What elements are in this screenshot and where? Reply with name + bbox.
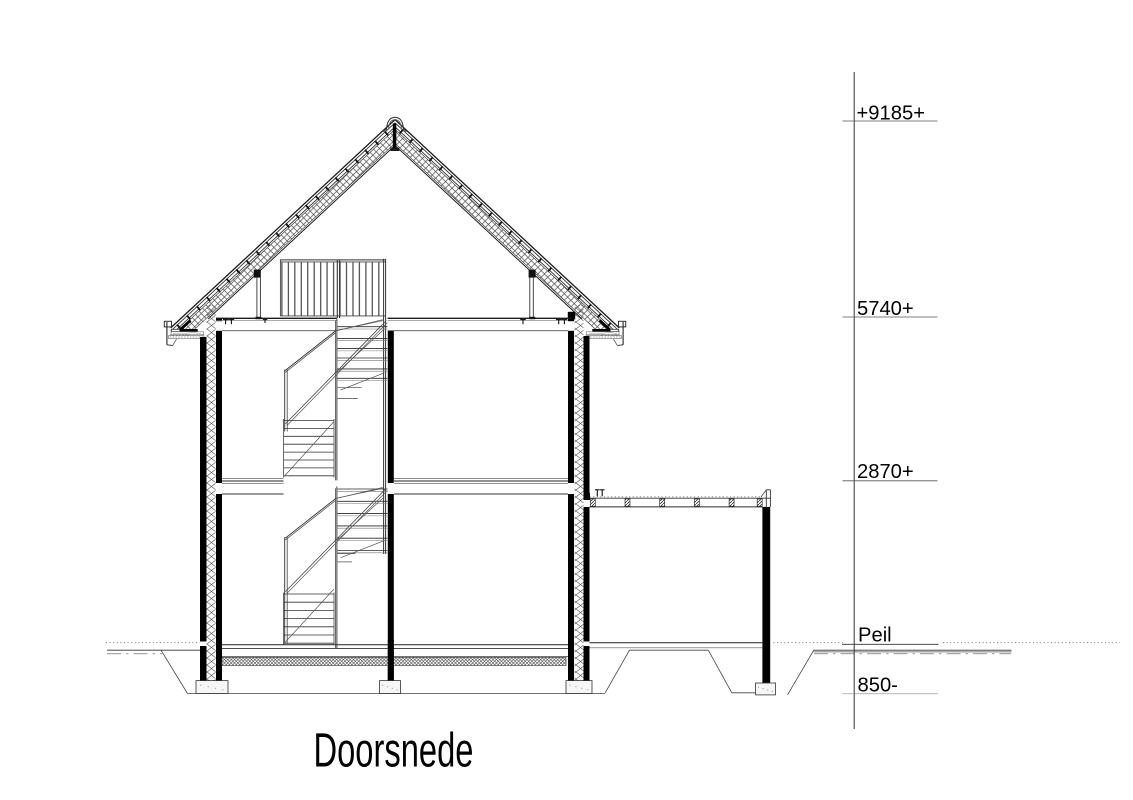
svg-text:2870+: 2870+: [857, 461, 914, 483]
svg-text:Doorsnede: Doorsnede: [314, 725, 474, 778]
svg-text:+9185+: +9185+: [857, 102, 926, 124]
svg-text:850-: 850-: [858, 675, 898, 697]
svg-text:5740+: 5740+: [857, 298, 914, 320]
svg-text:Peil: Peil: [858, 624, 892, 646]
